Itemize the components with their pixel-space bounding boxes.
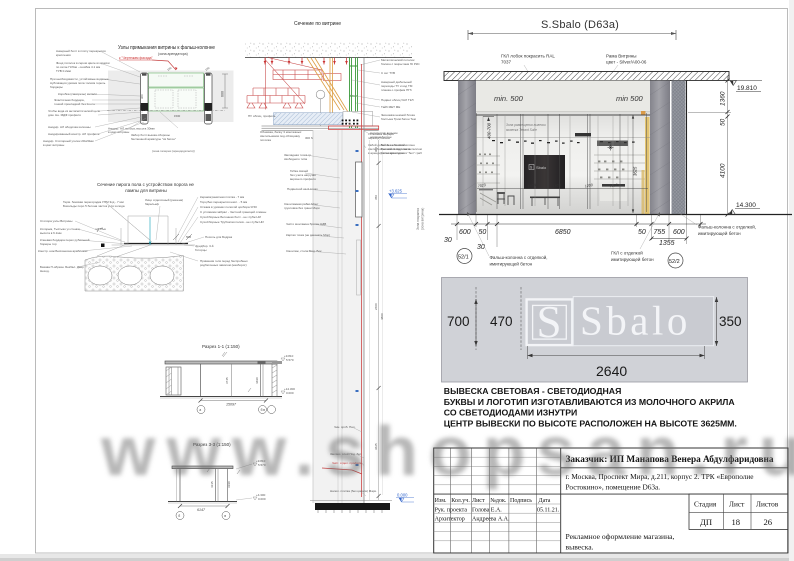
svg-text:высота в 6.1мм: высота в 6.1мм <box>40 231 61 235</box>
svg-text:+3.625: +3.625 <box>389 189 403 194</box>
svg-text:Подвес облиц УАЛ ТКЛ: Подвес облиц УАЛ ТКЛ <box>381 98 413 102</box>
svg-text:Дата: Дата <box>539 498 551 504</box>
svg-text:переход болкон: переход болкон <box>368 136 390 140</box>
svg-text:С условием забрал - Честной гр: С условием забрал - Честной границей отм… <box>200 210 266 214</box>
svg-text:Зона покрытия: Зона покрытия <box>416 208 420 230</box>
svg-text:Лист: Лист <box>472 498 485 504</box>
svg-text:360: 360 <box>140 94 144 99</box>
svg-text:Sbalo: Sbalo <box>580 298 691 344</box>
svg-text:Фальш-колонна с отделкой,: Фальш-колонна с отделкой, <box>490 254 548 260</box>
svg-text:СухоСборные Трубчатая полов -: СухоСборные Трубчатая полов - не глубж Н… <box>200 220 264 224</box>
svg-text:Рекламное оформление магазина,: Рекламное оформление магазина, <box>566 532 675 541</box>
svg-text:бордюры: бордюры <box>50 85 63 89</box>
svg-text:1355: 1355 <box>659 240 675 247</box>
svg-text:6850: 6850 <box>555 229 571 236</box>
svg-text:к "Чертежам фасада": к "Чертежам фасада" <box>119 56 153 60</box>
svg-text:350: 350 <box>374 195 378 200</box>
svg-text:дом. Не. МДФ профиля: дом. Не. МДФ профиля <box>48 113 81 117</box>
svg-text:600: 600 <box>459 229 471 236</box>
svg-text:30: 30 <box>444 237 452 244</box>
svg-text:(зона галереи (арендодателя)): (зона галереи (арендодателя)) <box>152 149 195 153</box>
svg-text:Сечение по витрине: Сечение по витрине <box>294 21 341 27</box>
svg-text:Рук. проекта: Рук. проекта <box>435 507 468 513</box>
svg-text:Архитектор: Архитектор <box>435 517 465 523</box>
svg-text:С сет ТУВ: С сет ТУВ <box>381 71 395 75</box>
svg-text:19.810: 19.810 <box>737 85 757 92</box>
svg-text:470: 470 <box>490 314 513 329</box>
svg-text:(зона арендатора): (зона арендатора) <box>158 52 188 56</box>
svg-text:18: 18 <box>732 517 741 527</box>
svg-text:5.570: 5.570 <box>286 358 294 362</box>
svg-text:Стопора узлы Витрины: Стопора узлы Витрины <box>40 219 72 223</box>
svg-text:Узлы примыкания витрины к фаль: Узлы примыкания витрины к фальш-колонне <box>118 45 215 51</box>
svg-text:Сечение пирога пола с устройст: Сечение пирога пола с устройством порога… <box>97 181 194 187</box>
svg-text:Картая точка (не догонять Мор): Картая точка (не догонять Мор) <box>286 233 330 237</box>
svg-text:беспешной арматуры "св бетон": беспешной арматуры "св бетон" <box>131 137 176 141</box>
svg-text:S: S <box>537 297 562 347</box>
svg-text:0.000: 0.000 <box>397 493 408 498</box>
svg-text:50: 50 <box>638 229 646 236</box>
svg-text:min 500: min 500 <box>616 94 644 103</box>
svg-text:потолка: потолка <box>260 138 271 142</box>
svg-text:родбетонных заволом (наоборот): родбетонных заволом (наоборот) <box>200 263 247 267</box>
svg-text:Неход.: Неход. <box>40 269 50 273</box>
svg-text:БУКВЫ И ЛОГОТИП ИЗГОТАВЛИВАЮТС: БУКВЫ И ЛОГОТИП ИЗГОТАВЛИВАЮТСЯ ИЗ МОЛОЧ… <box>444 397 736 407</box>
svg-text:Листов: Листов <box>756 500 779 509</box>
svg-text:болкон с покрытием Ю РКС: болкон с покрытием Ю РКС <box>381 62 421 66</box>
svg-text:S.Sbalo (D63a): S.Sbalo (D63a) <box>541 19 619 31</box>
svg-text:(зона витрины): (зона витрины) <box>421 208 425 230</box>
svg-text:гиб стык: гиб стык <box>95 227 107 231</box>
svg-text:болтына Трим батон Тем: болтына Трим батон Тем <box>381 117 416 121</box>
svg-text:Разрез 1-1 (1:150): Разрез 1-1 (1:150) <box>202 344 240 349</box>
svg-text:50: 50 <box>479 229 487 236</box>
svg-text:0.000: 0.000 <box>258 497 266 501</box>
svg-text:2640: 2640 <box>596 363 627 379</box>
svg-text:СухоСборные Бетонная болт - не: СухоСборные Бетонная болт - не глубж НИ <box>200 215 261 219</box>
svg-text:ДП: ДП <box>700 517 712 527</box>
svg-text:Рама Витрины: Рама Витрины <box>606 54 637 59</box>
svg-text:Sbalo: Sbalo <box>536 165 547 170</box>
svg-text:500: 500 <box>186 235 191 239</box>
svg-text:Керамогранитная плитка - 7 мм: Керамогранитная плитка - 7 мм <box>200 195 244 199</box>
svg-text:планка о профем ПГб: планка о профем ПГб <box>381 88 412 92</box>
svg-text:700: 700 <box>447 314 470 329</box>
svg-text:в: в <box>224 514 226 518</box>
svg-text:Бокольды поро 5 бетона часток: Бокольды поро 5 бетона часток угля холод… <box>63 204 125 208</box>
svg-text:борюры тор: борюры тор <box>40 242 57 246</box>
svg-text:7037: 7037 <box>501 60 512 65</box>
svg-text:26: 26 <box>764 517 773 527</box>
svg-text:4800: 4800 <box>380 313 384 320</box>
svg-text:Подвесной на 3 слоях: Подвесной на 3 слоях <box>287 187 318 191</box>
svg-text:Торц Без перекрытия нахл. - 5: Торц Без перекрытия нахл. - 5 мм <box>200 200 247 204</box>
svg-text:min. 500: min. 500 <box>494 94 524 103</box>
svg-text:тонкой прокладкой без Конта: тонкой прокладкой без Конта <box>54 102 95 106</box>
svg-text:Стяжка в уровнях полосой цолбо: Стяжка в уровнях полосой цолбора Я 50 <box>200 205 257 209</box>
svg-text:600: 600 <box>673 229 685 236</box>
svg-text:Кол.уч.: Кол.уч. <box>451 498 470 504</box>
svg-text:вывеска.: вывеска. <box>566 543 594 552</box>
svg-text:15097: 15097 <box>226 403 237 407</box>
svg-text:грунтовка без грани Морк: грунтовка без грани Морк <box>284 206 320 210</box>
svg-text:ВЫВЕСКА СВЕТОВАЯ - СВЕТОДИОДНА: ВЫВЕСКА СВЕТОВАЯ - СВЕТОДИОДНАЯ <box>444 386 622 396</box>
svg-text:400-700: 400-700 <box>487 122 492 139</box>
svg-text:Смонтаж, стола Мод. Бок: Смонтаж, стола Мод. Бок <box>286 249 322 253</box>
svg-text:1360: 1360 <box>720 91 727 106</box>
svg-text:№док.: №док. <box>490 498 507 504</box>
svg-text:вывеска Tenant Suite: вывеска Tenant Suite <box>506 128 537 132</box>
svg-text:1500: 1500 <box>174 114 181 118</box>
svg-text:05.11.21.: 05.11.21. <box>537 507 560 513</box>
svg-text:Тайб МЕТ МЕ: Тайб МЕТ МЕ <box>381 105 400 109</box>
svg-text:3625: 3625 <box>633 166 638 176</box>
svg-text:Подпись: Подпись <box>510 498 532 504</box>
svg-text:цвет - Silver/A00-06: цвет - Silver/A00-06 <box>606 60 647 65</box>
svg-text:свободного типа: свободного типа <box>284 157 307 161</box>
svg-text:в цвет витрины: в цвет витрины <box>43 143 64 147</box>
svg-text:4100: 4100 <box>720 163 727 178</box>
svg-text:Готорцы: Готорцы <box>195 248 207 252</box>
svg-text:бетон арматура из "бел" граб: бетон арматура из "бел" граб <box>381 151 422 155</box>
svg-text:имитирующей бетон: имитирующей бетон <box>698 230 741 236</box>
svg-text:ГКЛ лобок покрасить RAL: ГКЛ лобок покрасить RAL <box>501 54 555 59</box>
svg-text:барельеф: барельеф <box>145 202 160 206</box>
svg-text:0.000: 0.000 <box>286 391 294 395</box>
svg-text:крепления: крепления <box>56 53 71 57</box>
svg-text:ТУВ 0.2мм: ТУВ 0.2мм <box>56 69 71 73</box>
svg-text:Зона размещения вывески: Зона размещения вывески <box>506 123 546 127</box>
svg-text:2600: 2600 <box>374 303 378 310</box>
svg-text:Лист: Лист <box>729 500 745 509</box>
svg-text:755: 755 <box>654 229 666 236</box>
svg-text:6147: 6147 <box>197 508 206 512</box>
svg-text:Анодированный констр. АЛ профи: Анодированный констр. АЛ профиль <box>48 132 100 136</box>
svg-text:имитирующей бетон: имитирующей бетон <box>611 256 654 262</box>
svg-text:Анодир. АЛ ободочка колонны: Анодир. АЛ ободочка колонны <box>48 125 91 129</box>
svg-text:Изм.: Изм. <box>435 498 447 504</box>
svg-text:4490: 4490 <box>255 377 259 384</box>
svg-text:350: 350 <box>719 314 742 329</box>
svg-text:верхнего профиля: верхнего профиля <box>290 177 316 181</box>
svg-text:14.300: 14.300 <box>736 202 756 209</box>
svg-text:Стадия: Стадия <box>694 500 717 509</box>
svg-text:лампы для витрины: лампы для витрины <box>125 188 167 193</box>
svg-text:Фальш-колонна с отделкой,: Фальш-колонна с отделкой, <box>698 224 756 230</box>
svg-text:Андреева А.А.: Андреева А.А. <box>472 517 510 523</box>
svg-text:б: б <box>178 514 180 518</box>
svg-text:900: 900 <box>374 147 378 152</box>
svg-text:ПУ облиц. профиль: ПУ облиц. профиль <box>248 114 276 118</box>
svg-text:имитирующей бетон: имитирующей бетон <box>490 261 533 267</box>
svg-text:Посоль для Бодрак: Посоль для Бодрак <box>205 235 233 239</box>
svg-text:Констр. нож Бесконечна армблок: Констр. нож Бесконечна армблоках <box>38 249 88 253</box>
svg-text:3745: 3745 <box>225 377 229 384</box>
svg-text:52/1: 52/1 <box>458 255 469 261</box>
svg-text:Чисто монтажна брятан НДВ: Чисто монтажна брятан НДВ <box>286 222 326 226</box>
svg-text:600: 600 <box>221 91 225 97</box>
svg-text:Голова Е.А.: Голова Е.А. <box>472 507 502 513</box>
svg-text:50: 50 <box>720 118 727 126</box>
svg-text:52/2: 52/2 <box>669 259 680 265</box>
svg-text:ГКЛ с отделкой: ГКЛ с отделкой <box>611 250 643 256</box>
